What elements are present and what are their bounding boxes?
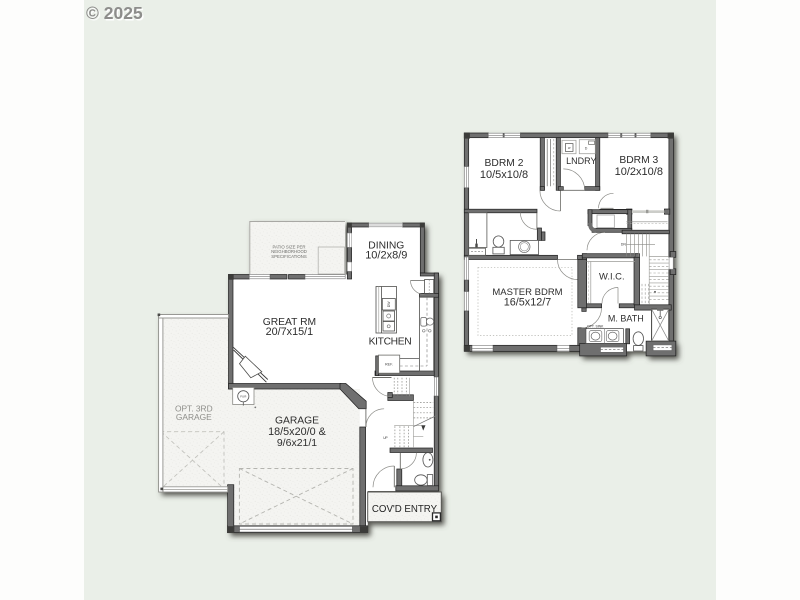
svg-text:UP: UP <box>383 436 387 440</box>
svg-text:W.I.C.: W.I.C. <box>599 271 625 282</box>
svg-text:GARAGE: GARAGE <box>176 412 212 422</box>
svg-text:M. BATH: M. BATH <box>608 313 644 323</box>
svg-text:SPECIFICATIONS: SPECIFICATIONS <box>271 254 307 259</box>
svg-text:DW: DW <box>387 301 391 307</box>
svg-text:REF.: REF. <box>385 362 393 366</box>
svg-text:9/6x21/1: 9/6x21/1 <box>277 437 317 449</box>
svg-text:© 2025: © 2025 <box>86 3 143 23</box>
svg-text:18/5x20/0 &: 18/5x20/0 & <box>268 426 326 438</box>
svg-text:10/2x10/8: 10/2x10/8 <box>615 166 663 178</box>
svg-text:10/2x8/9: 10/2x8/9 <box>365 249 407 261</box>
svg-text:LNDRY: LNDRY <box>566 156 596 166</box>
svg-text:FUR: FUR <box>240 395 247 399</box>
svg-text:20/7x15/1: 20/7x15/1 <box>266 326 313 338</box>
svg-text:KITCHEN: KITCHEN <box>369 337 412 348</box>
svg-text:BDRM 3: BDRM 3 <box>619 155 658 166</box>
svg-text:BDRM 2: BDRM 2 <box>485 158 524 169</box>
svg-text:D: D <box>585 147 588 151</box>
svg-text:16/5x12/7: 16/5x12/7 <box>504 296 551 308</box>
svg-text:10/5x10/8: 10/5x10/8 <box>480 169 528 181</box>
svg-text:DN: DN <box>621 242 626 246</box>
svg-text:COV'D ENTRY: COV'D ENTRY <box>372 504 438 515</box>
svg-text:OPT. SINK: OPT. SINK <box>587 324 604 328</box>
